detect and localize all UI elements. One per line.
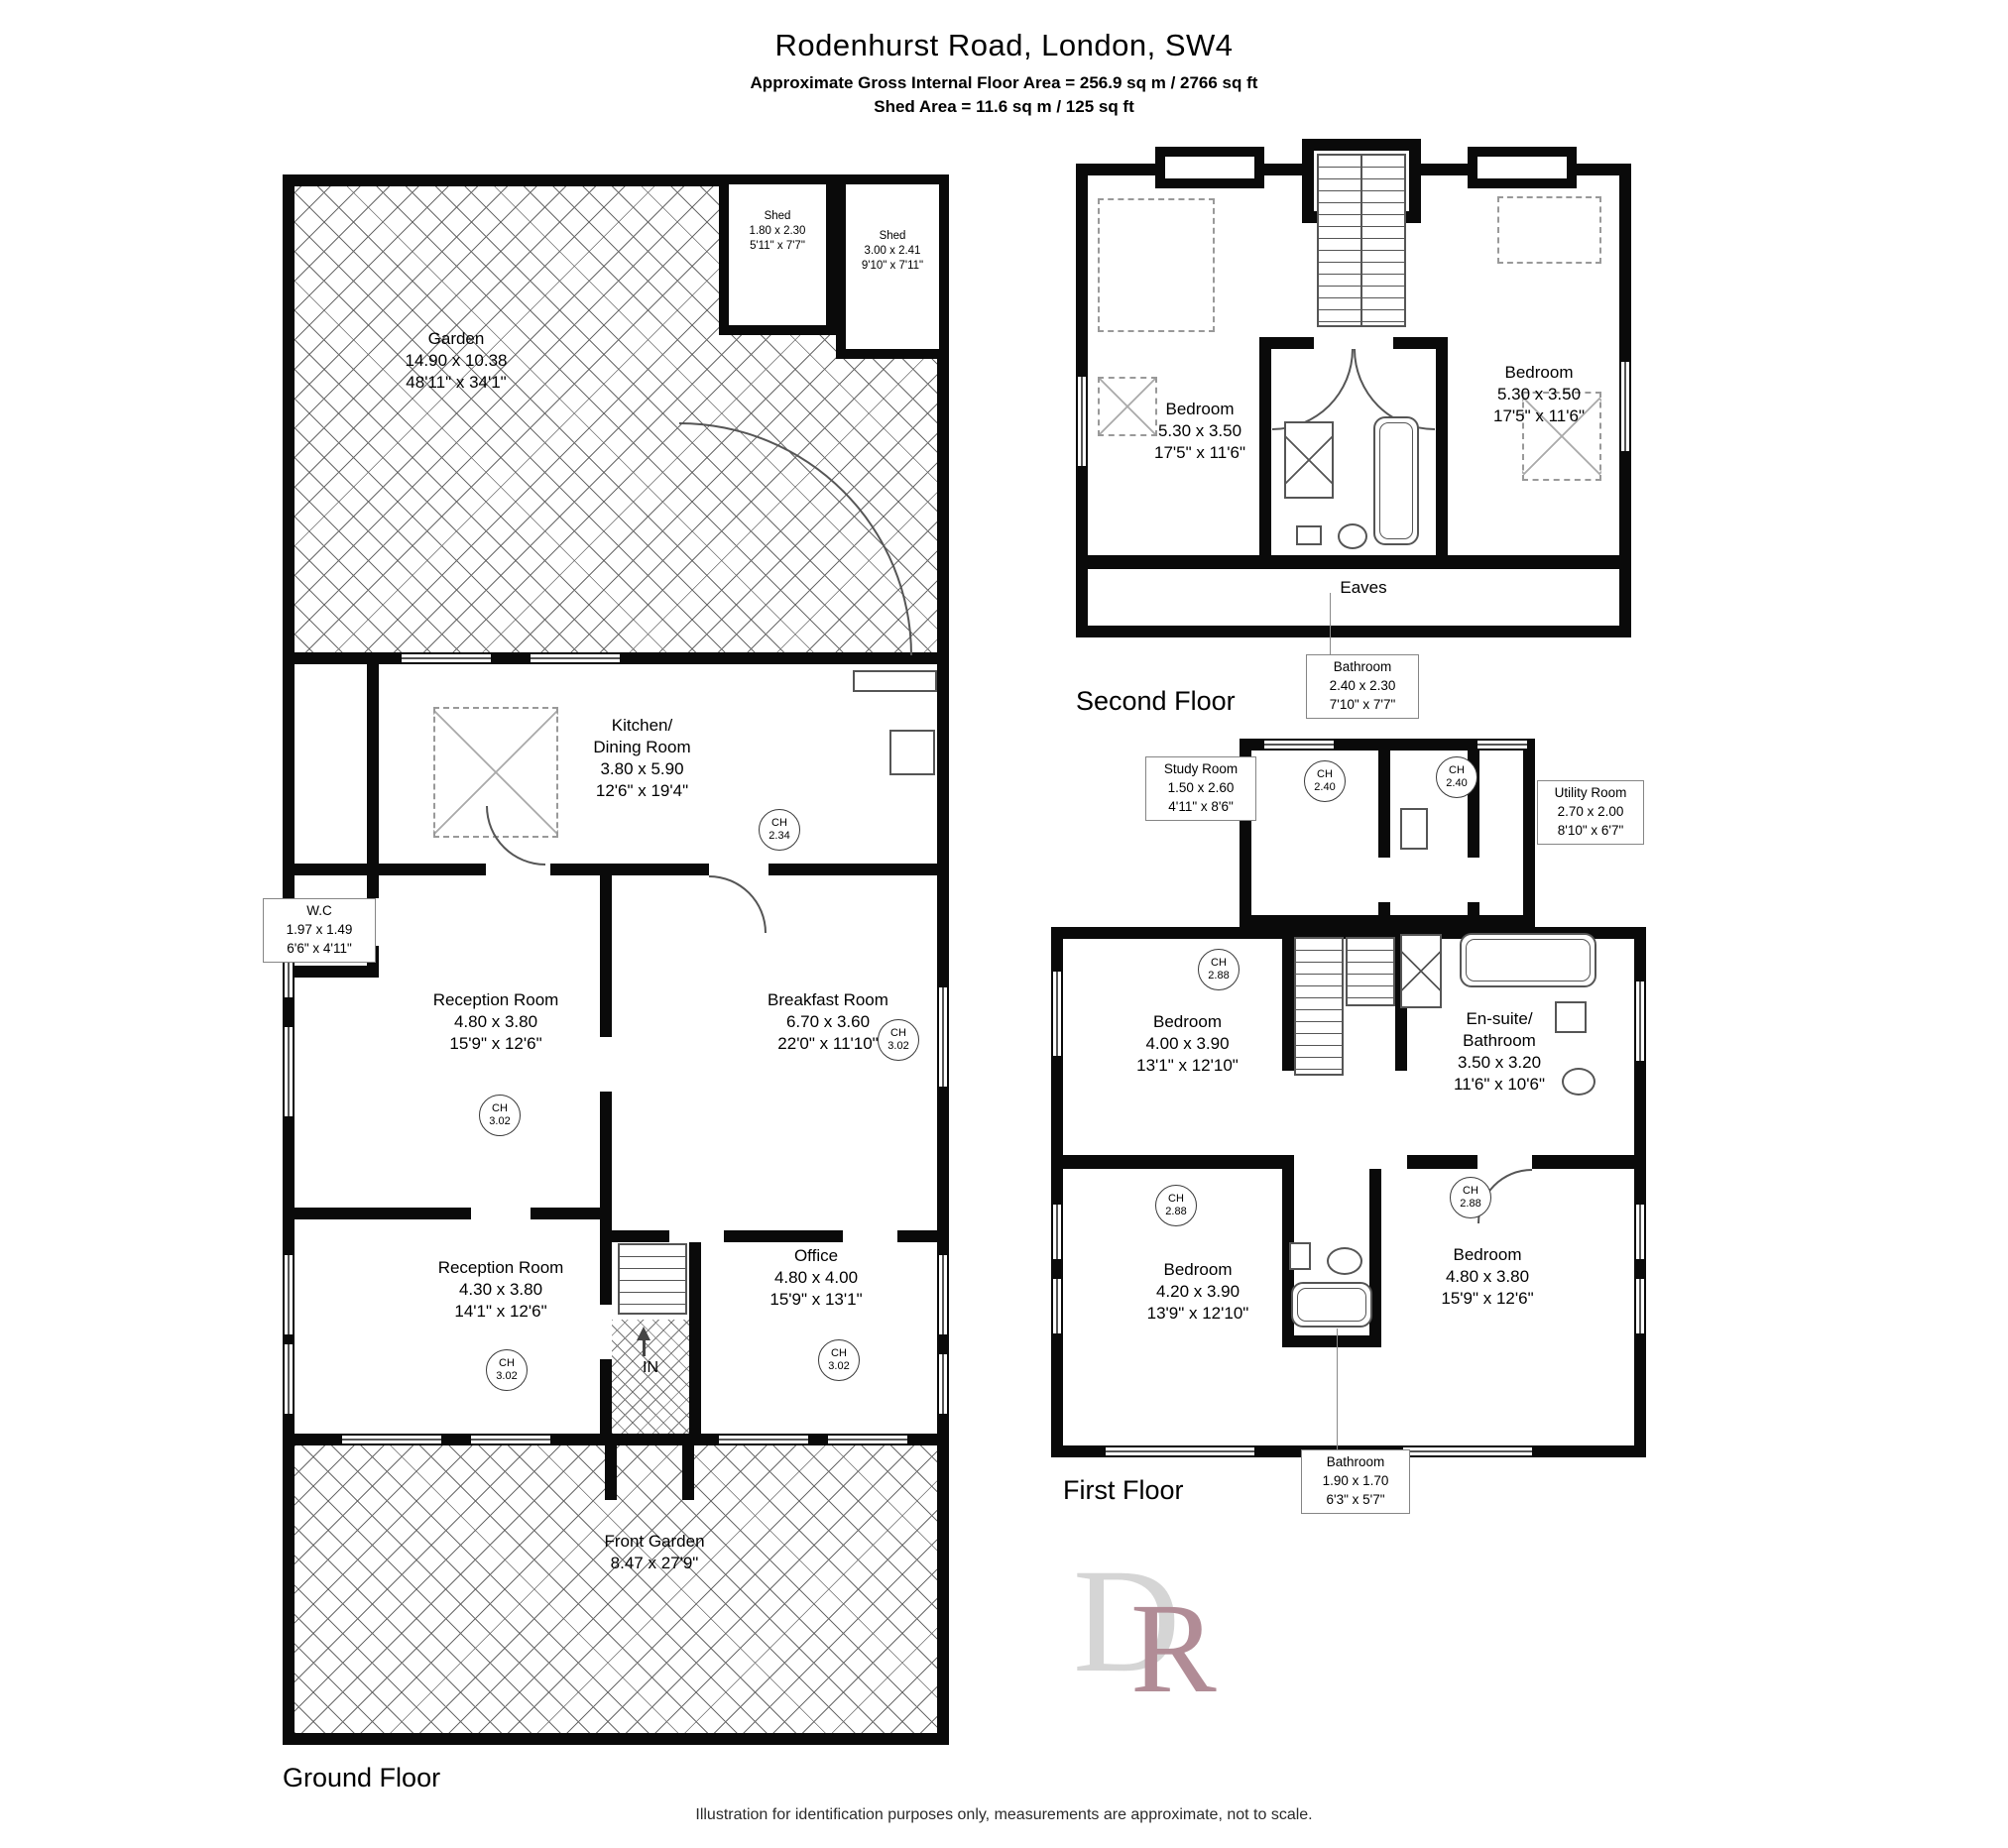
stairs-icon (1346, 937, 1395, 1006)
window-icon (531, 652, 620, 664)
room-metric: 5.30 x 3.50 (1445, 384, 1633, 405)
shed-label: Shed 1.80 x 2.30 5'11" x 7'7" (719, 209, 836, 254)
bedroom-label: Bedroom 4.00 x 3.90 13'1" x 12'10" (1091, 1011, 1284, 1077)
room-imperial: 11'6" x 10'6" (1410, 1074, 1589, 1096)
room-name: Shed (719, 209, 836, 224)
front-garden-label: Front Garden 8.47 x 27'9" (535, 1531, 773, 1574)
room-metric: 3.50 x 3.20 (1410, 1052, 1589, 1074)
ch-value: 3.02 (819, 1360, 859, 1373)
room-imperial: 9'10" x 7'11" (836, 259, 949, 274)
ch-value: 2.40 (1437, 777, 1476, 790)
room-imperial: 6'3" x 5'7" (1308, 1491, 1403, 1510)
ch-value: 2.88 (1199, 970, 1239, 982)
ceiling-height-badge: CH 2.88 (1198, 949, 1240, 990)
bedroom-label: Bedroom 5.30 x 3.50 17'5" x 11'6" (1445, 362, 1633, 427)
wall (1259, 337, 1314, 349)
wall (295, 864, 937, 875)
second-floor-title: Second Floor (1076, 686, 1236, 717)
window-icon (828, 1434, 907, 1445)
bathroom-label-box: Bathroom 2.40 x 2.30 7'10" x 7'7" (1306, 654, 1419, 719)
room-imperial: 15'9" x 12'6" (1393, 1288, 1582, 1310)
floor-area-subtitle: Approximate Gross Internal Floor Area = … (0, 73, 2008, 93)
window-icon (1051, 972, 1063, 1056)
bath-icon (1291, 1282, 1372, 1328)
ch-value: 2.88 (1156, 1206, 1196, 1218)
ch-value: 2.88 (1451, 1198, 1490, 1211)
ground-floor-title: Ground Floor (283, 1763, 440, 1793)
room-name: Bedroom (1091, 1011, 1284, 1033)
room-name: Bedroom (1393, 1244, 1582, 1266)
ch-text: CH (760, 817, 799, 830)
room-imperial: 15'9" x 13'1" (707, 1289, 925, 1311)
ch-value: 3.02 (487, 1370, 527, 1383)
room-metric: 14.90 x 10.38 (337, 350, 575, 372)
bathroom-label-box: Bathroom 1.90 x 1.70 6'3" x 5'7" (1301, 1449, 1410, 1514)
room-name: W.C (270, 902, 369, 921)
room-metric: 2.70 x 2.00 (1544, 803, 1637, 822)
logo-letter-r: R (1130, 1584, 1217, 1713)
sink-icon (1400, 808, 1428, 850)
kitchen-label: Kitchen/ Dining Room 3.80 x 5.90 12'6" x… (535, 715, 749, 802)
room-name: Study Room (1152, 760, 1249, 779)
header: Rodenhurst Road, London, SW4 Approximate… (0, 28, 2008, 117)
shed-room (719, 174, 836, 335)
room-name: Kitchen/ (535, 715, 749, 737)
ceiling-height-badge: CH 2.88 (1450, 1177, 1491, 1218)
ensuite-label: En-suite/ Bathroom 3.50 x 3.20 11'6" x 1… (1410, 1008, 1589, 1096)
room-imperial: 48'11" x 34'1" (337, 372, 575, 394)
room-imperial: 13'9" x 12'10" (1099, 1303, 1297, 1325)
room-metric: 4.00 x 3.90 (1091, 1033, 1284, 1055)
wc-label-box: W.C 1.97 x 1.49 6'6" x 4'11" (263, 898, 376, 963)
window-icon (1264, 739, 1334, 751)
window-icon (1106, 1445, 1254, 1457)
window-icon (1051, 1279, 1063, 1333)
ceiling-height-badge: CH 2.40 (1436, 756, 1477, 798)
wall (295, 1208, 600, 1219)
wall (1088, 555, 1619, 569)
room-metric: 4.80 x 3.80 (1393, 1266, 1582, 1288)
room-name: En-suite/ (1410, 1008, 1589, 1030)
wall (295, 966, 379, 978)
dr-logo: D R (1073, 1547, 1271, 1735)
room-imperial: 13'1" x 12'10" (1091, 1055, 1284, 1077)
ceiling-height-badge: CH 2.34 (759, 809, 800, 851)
ch-value: 3.02 (480, 1115, 520, 1128)
hob-icon (889, 730, 935, 775)
wall (283, 174, 295, 652)
room-metric: 1.90 x 1.70 (1308, 1472, 1403, 1491)
eaves-label: Eaves (1304, 577, 1423, 599)
window-icon (1076, 377, 1088, 466)
room-metric: 4.80 x 3.80 (377, 1011, 615, 1033)
door-opening (843, 1230, 897, 1242)
toilet-icon (1338, 523, 1367, 549)
room-metric: 3.00 x 2.41 (836, 244, 949, 259)
ch-text: CH (487, 1357, 527, 1370)
ch-text: CH (1156, 1193, 1196, 1206)
room-metric: 5.30 x 3.50 (1106, 420, 1294, 442)
first-floor-title: First Floor (1063, 1475, 1184, 1506)
ch-text: CH (1437, 764, 1476, 777)
entrance-arrow-icon (637, 1327, 650, 1340)
ch-value: 3.02 (879, 1040, 918, 1053)
ground-floor-plan: Shed 1.80 x 2.30 5'11" x 7'7" Shed 3.00 … (283, 174, 949, 1747)
room-imperial: 15'9" x 12'6" (377, 1033, 615, 1055)
shed-area-subtitle: Shed Area = 11.6 sq m / 125 sq ft (0, 97, 2008, 117)
stairs-icon (1294, 937, 1344, 1076)
page-title: Rodenhurst Road, London, SW4 (0, 28, 2008, 63)
ch-text: CH (1305, 768, 1345, 781)
sink-icon (853, 670, 937, 692)
room-name: Bathroom (1313, 658, 1412, 677)
ceiling-height-badge: CH 3.02 (818, 1339, 860, 1381)
study-room-label-box: Study Room 1.50 x 2.60 4'11" x 8'6" (1145, 756, 1256, 821)
office-label: Office 4.80 x 4.00 15'9" x 13'1" (707, 1245, 925, 1311)
room-name: Front Garden (535, 1531, 773, 1553)
room-name: Shed (836, 229, 949, 244)
entrance-arrow-icon (643, 1340, 646, 1356)
room-imperial: 17'5" x 11'6" (1106, 442, 1294, 464)
toilet-icon (1327, 1247, 1362, 1275)
window-icon (719, 1434, 808, 1445)
room-metric: 2.40 x 2.30 (1313, 677, 1412, 696)
room-metric: 1.50 x 2.60 (1152, 779, 1249, 798)
door-opening (669, 1230, 724, 1242)
room-name: Utility Room (1544, 784, 1637, 803)
room-imperial: 12'6" x 19'4" (535, 780, 749, 802)
room-name: Bedroom (1445, 362, 1633, 384)
room-name: Dining Room (535, 737, 749, 758)
leader-line (1337, 1328, 1338, 1452)
floorplan-page: Rodenhurst Road, London, SW4 Approximate… (0, 0, 2008, 1848)
room-imperial: 4'11" x 8'6" (1152, 798, 1249, 817)
window-icon (1051, 1205, 1063, 1259)
wall (605, 1445, 617, 1500)
room-name: Bathroom (1410, 1030, 1589, 1052)
window-icon (937, 1354, 949, 1414)
window-icon (283, 1027, 295, 1116)
shower-icon (1400, 934, 1442, 1008)
ch-text: CH (1199, 957, 1239, 970)
utility-room-label-box: Utility Room 2.70 x 2.00 8'10" x 6'7" (1537, 780, 1644, 845)
shed-label: Shed 3.00 x 2.41 9'10" x 7'11" (836, 229, 949, 274)
room-imperial: 14'1" x 12'6" (382, 1301, 620, 1323)
stair-divider (1360, 154, 1362, 327)
room-name: Bedroom (1099, 1259, 1297, 1281)
room-imperial: 7'10" x 7'7" (1313, 696, 1412, 715)
ceiling-height-badge: CH 2.40 (1304, 760, 1346, 802)
wall (682, 1445, 694, 1500)
leader-line (1330, 593, 1331, 654)
door-opening (709, 864, 768, 875)
room-imperial: 6'6" x 4'11" (270, 940, 369, 959)
room-metric: 3.80 x 5.90 (535, 758, 749, 780)
dormer-window (1468, 147, 1577, 188)
window-icon (937, 1255, 949, 1334)
bedroom-label: Bedroom 4.80 x 3.80 15'9" x 12'6" (1393, 1244, 1582, 1310)
wall (1282, 1335, 1381, 1347)
room-name: Bedroom (1106, 399, 1294, 420)
room-metric: 4.80 x 4.00 (707, 1267, 925, 1289)
ch-text: CH (1451, 1185, 1490, 1198)
room-name: Reception Room (382, 1257, 620, 1279)
room-metric: 1.80 x 2.30 (719, 224, 836, 239)
wall (1393, 337, 1448, 349)
bedroom-label: Bedroom 5.30 x 3.50 17'5" x 11'6" (1106, 399, 1294, 464)
window-icon (1634, 1279, 1646, 1333)
ch-text: CH (819, 1347, 859, 1360)
window-icon (402, 652, 491, 664)
room-name: Breakfast Room (714, 989, 942, 1011)
door-opening (1477, 1155, 1532, 1169)
bath-icon (1460, 933, 1596, 987)
first-floor-plan: CH 2.40 CH 2.40 Study Room 1.50 x 2.60 4… (1051, 739, 1686, 1457)
ceiling-height-badge: CH 3.02 (486, 1349, 528, 1391)
ch-text: CH (480, 1102, 520, 1115)
entrance-in-label: IN (626, 1358, 675, 1379)
room-imperial: 17'5" x 11'6" (1445, 405, 1633, 427)
window-icon (1403, 1445, 1532, 1457)
ch-value: 2.34 (760, 830, 799, 843)
ch-text: CH (879, 1027, 918, 1040)
wardrobe-dashed (1098, 198, 1215, 332)
wall (1063, 1155, 1294, 1169)
reception-room-label: Reception Room 4.80 x 3.80 15'9" x 12'6" (377, 989, 615, 1055)
door-opening (471, 1208, 531, 1219)
window-icon (1477, 739, 1527, 751)
room-name: Bathroom (1308, 1453, 1403, 1472)
bedroom-label: Bedroom 4.20 x 3.90 13'9" x 12'10" (1099, 1259, 1297, 1325)
room-name: Reception Room (377, 989, 615, 1011)
room-metric: 4.20 x 3.90 (1099, 1281, 1297, 1303)
room-metric: 4.30 x 3.80 (382, 1279, 620, 1301)
room-imperial: 5'11" x 7'7" (719, 239, 836, 254)
wall (283, 174, 734, 186)
garden-label: Garden 14.90 x 10.38 48'11" x 34'1" (337, 328, 575, 394)
second-floor-plan: Bedroom 5.30 x 3.50 17'5" x 11'6" Bedroo… (1076, 139, 1631, 669)
sink-icon (1296, 525, 1322, 545)
room-imperial: 8'10" x 6'7" (1544, 822, 1637, 841)
window-icon (1634, 1205, 1646, 1259)
bath-icon (1373, 416, 1419, 545)
window-icon (342, 1434, 441, 1445)
ch-value: 2.40 (1305, 781, 1345, 794)
door-opening (1378, 858, 1390, 902)
room-name: Garden (337, 328, 575, 350)
ceiling-height-badge: CH 2.88 (1155, 1185, 1197, 1226)
room-metric: 1.97 x 1.49 (270, 921, 369, 940)
wardrobe-dashed (1497, 196, 1601, 264)
room-metric: 8.47 x 27'9" (535, 1553, 773, 1574)
window-icon (471, 1434, 550, 1445)
window-icon (283, 1344, 295, 1414)
stairs-icon (618, 1243, 687, 1315)
reception-room-label: Reception Room 4.30 x 3.80 14'1" x 12'6" (382, 1257, 620, 1323)
ceiling-height-badge: CH 3.02 (878, 1019, 919, 1061)
wall (689, 1242, 701, 1434)
window-icon (283, 1255, 295, 1334)
disclaimer-text: Illustration for identification purposes… (0, 1806, 2008, 1824)
window-icon (1634, 982, 1646, 1061)
wall (937, 343, 949, 652)
ceiling-height-badge: CH 3.02 (479, 1095, 521, 1136)
room-name: Office (707, 1245, 925, 1267)
dormer-window (1155, 147, 1264, 188)
door-opening (1468, 858, 1479, 902)
